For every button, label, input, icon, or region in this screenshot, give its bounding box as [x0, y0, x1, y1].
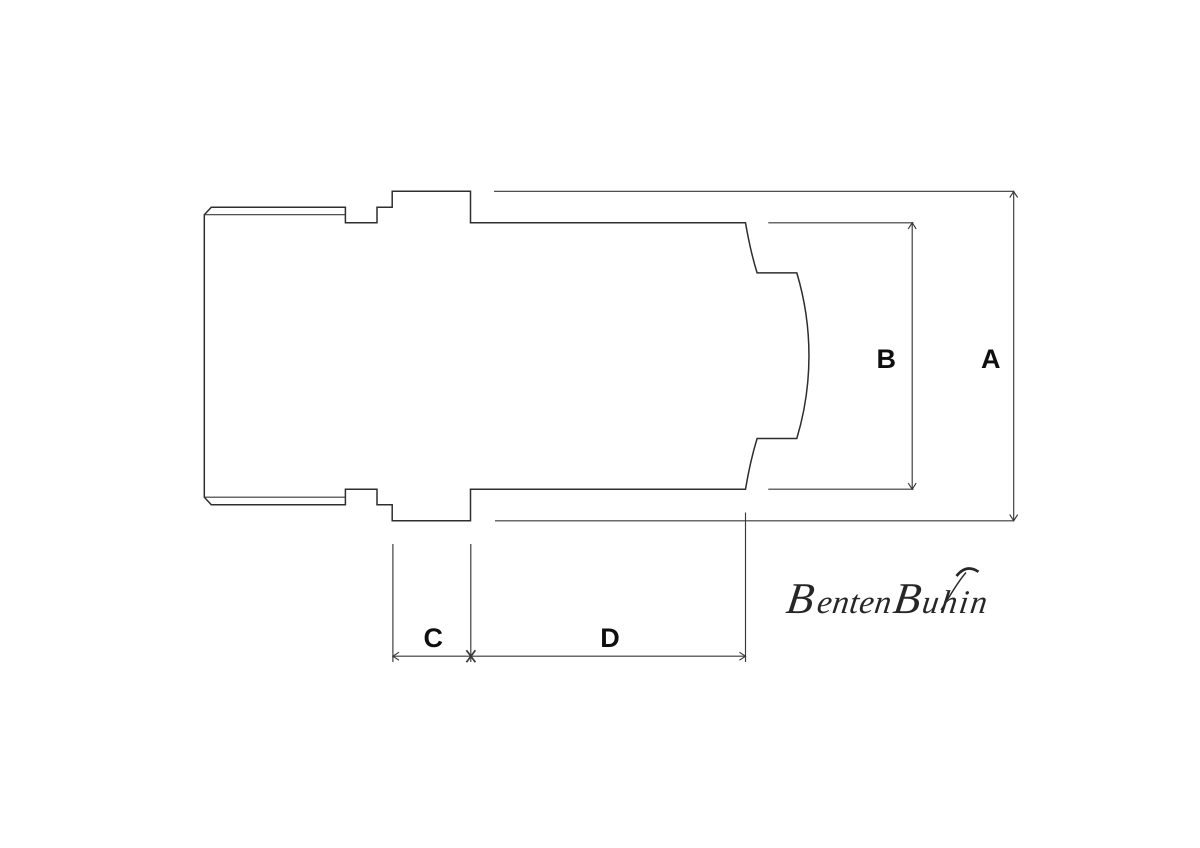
- svg-text:A: A: [981, 344, 1001, 374]
- svg-text:B: B: [877, 344, 897, 374]
- svg-text:enten: enten: [815, 584, 895, 621]
- svg-text:D: D: [600, 623, 620, 653]
- svg-text:C: C: [424, 623, 444, 653]
- svg-text:uhin: uhin: [920, 584, 992, 621]
